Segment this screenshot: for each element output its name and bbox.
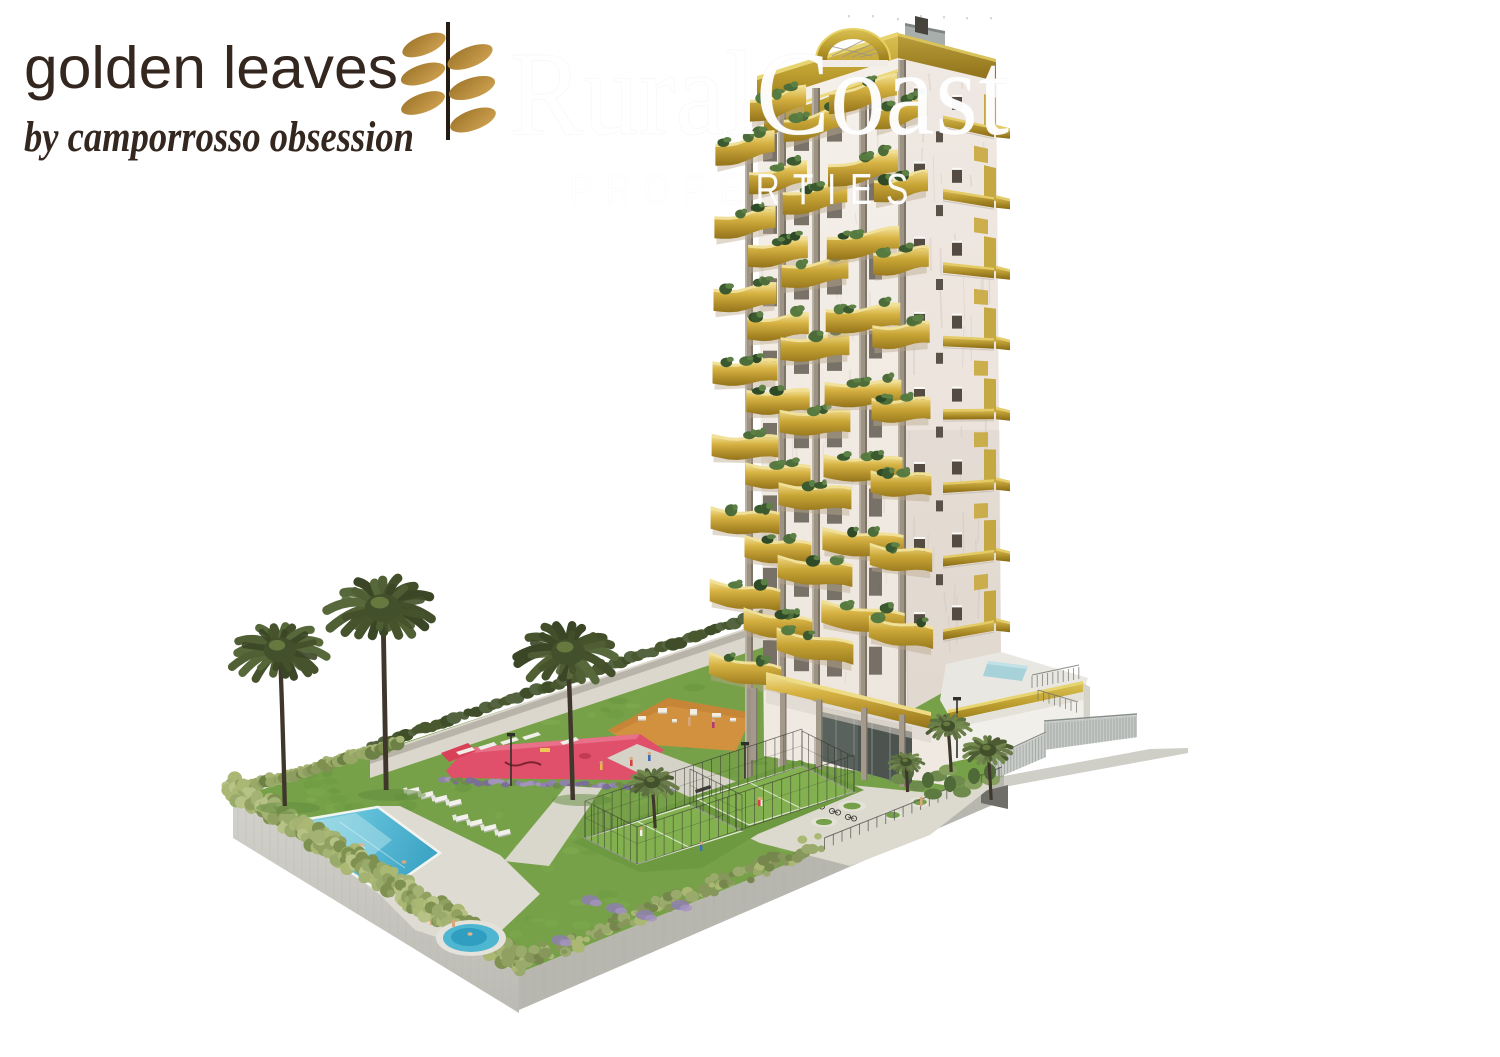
svg-text:by camporrosso obsession: by camporrosso obsession — [24, 114, 414, 161]
svg-text:PROPERTIES: PROPERTIES — [570, 165, 922, 214]
svg-text:RuralCoast: RuralCoast — [509, 27, 1009, 161]
svg-text:golden leaves: golden leaves — [24, 35, 398, 101]
